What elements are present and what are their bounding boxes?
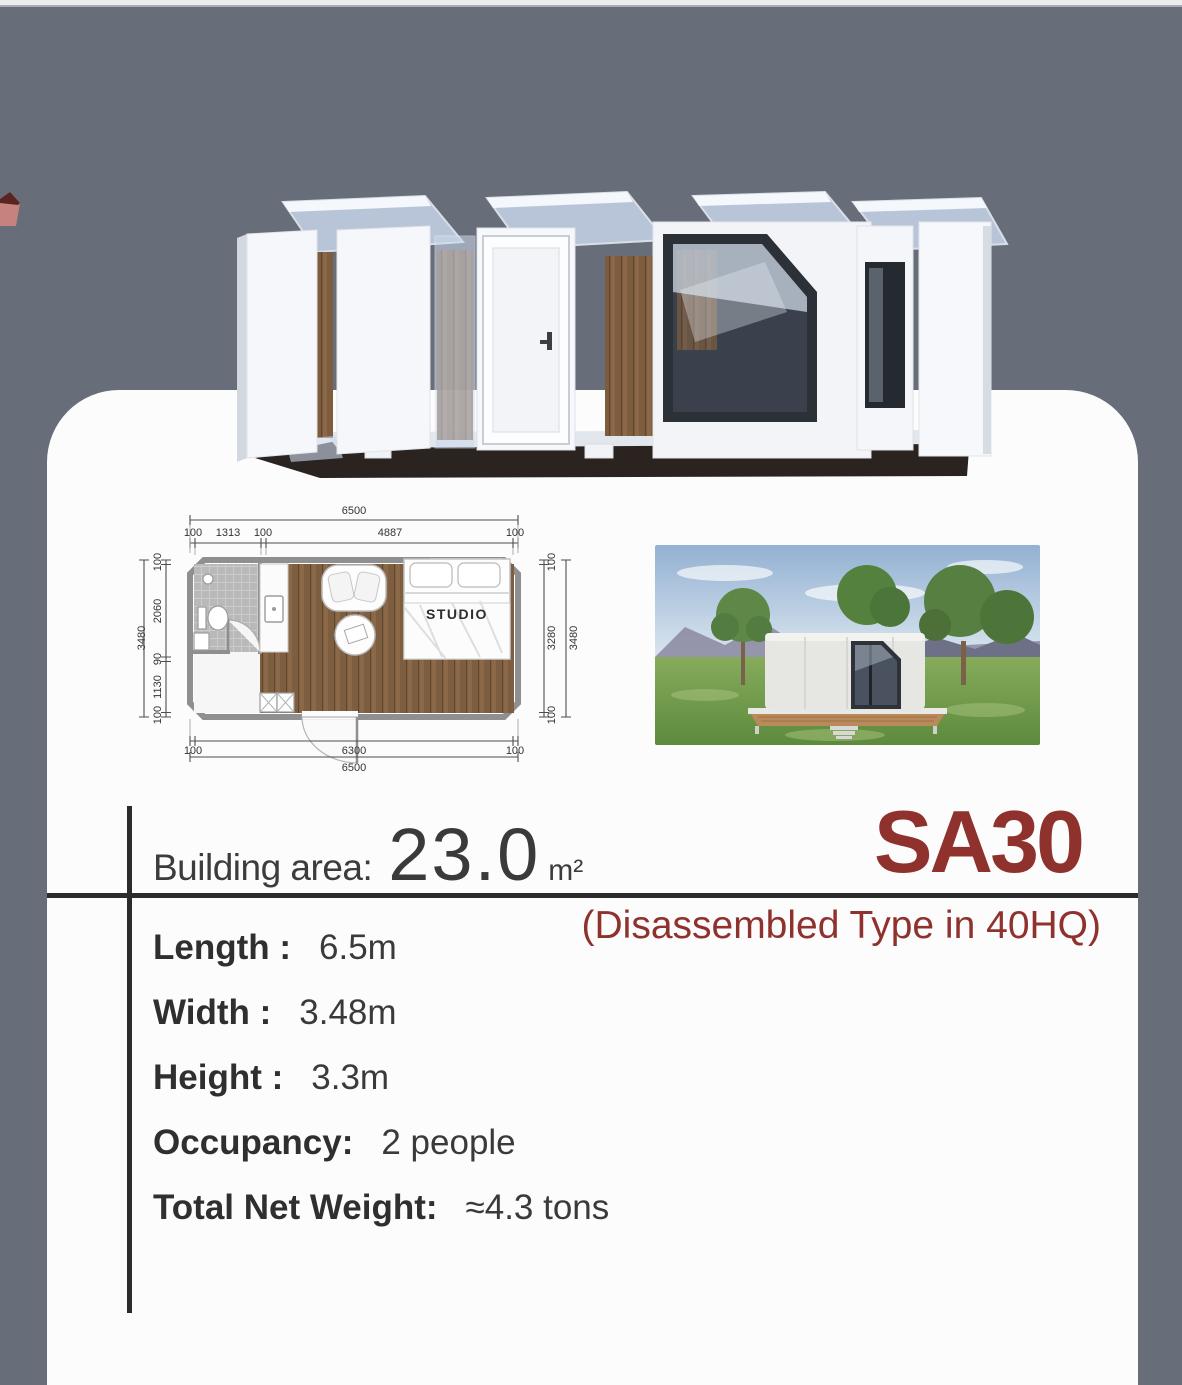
spec-row-height: Height : 3.3m bbox=[153, 1045, 609, 1110]
page-background: STUDIO 6500 100 1313 100 4887 100 3480 1… bbox=[0, 0, 1182, 1385]
dim-bottom-total: 6500 bbox=[342, 762, 366, 774]
spec-list: Length : 6.5m Width : 3.48m Height : 3.3… bbox=[153, 915, 609, 1240]
spec-label: Height : bbox=[153, 1058, 283, 1098]
dim-left-seg: 100 bbox=[152, 706, 164, 724]
red-object-fragment bbox=[0, 192, 20, 226]
vertical-divider bbox=[127, 806, 132, 1313]
dim-top-seg: 100 bbox=[254, 527, 272, 539]
spec-value: 3.3m bbox=[311, 1058, 389, 1098]
sofa bbox=[322, 565, 386, 611]
angled-window-panel bbox=[653, 222, 871, 458]
dim-bottom-seg: 6300 bbox=[342, 745, 366, 757]
building-area-label: Building area: bbox=[153, 847, 372, 889]
dim-left-seg: 90 bbox=[152, 653, 164, 665]
wood-deck bbox=[750, 713, 945, 726]
dim-top-seg: 4887 bbox=[378, 527, 402, 539]
dim-top-seg: 100 bbox=[184, 527, 202, 539]
room-label: STUDIO bbox=[426, 606, 488, 622]
spec-row-width: Width : 3.48m bbox=[153, 980, 609, 1045]
model-subtitle: (Disassembled Type in 40HQ) bbox=[582, 904, 1102, 948]
white-wall-panels bbox=[237, 226, 430, 462]
spec-label: Width : bbox=[153, 993, 271, 1033]
model-code: SA30 bbox=[874, 798, 1082, 886]
dim-top-seg: 100 bbox=[506, 527, 524, 539]
top-edge-strip bbox=[0, 0, 1182, 7]
dim-top-total: 6500 bbox=[342, 505, 366, 517]
dim-left-seg: 2060 bbox=[152, 599, 164, 623]
spec-value: 3.48m bbox=[299, 993, 396, 1033]
dim-right-seg: 3280 bbox=[546, 626, 558, 650]
dim-bottom-seg: 100 bbox=[506, 745, 524, 757]
entry-door-panel bbox=[477, 228, 575, 450]
house bbox=[748, 633, 947, 739]
dim-left-seg: 100 bbox=[152, 553, 164, 571]
spec-label: Length : bbox=[153, 928, 291, 968]
house-photo bbox=[655, 545, 1040, 745]
exploded-house-render bbox=[225, 190, 1010, 485]
spec-row-occupancy: Occupancy: 2 people bbox=[153, 1110, 609, 1175]
shower-head bbox=[203, 574, 213, 584]
pillow bbox=[410, 563, 452, 587]
horizontal-divider bbox=[47, 893, 1138, 898]
spec-label: Total Net Weight: bbox=[153, 1188, 438, 1228]
spec-value: 2 people bbox=[381, 1123, 515, 1163]
dim-right-total: 3480 bbox=[568, 626, 580, 650]
dim-right-seg: 100 bbox=[546, 553, 558, 571]
bathroom-sink bbox=[194, 633, 209, 650]
building-area-unit: m² bbox=[548, 854, 583, 888]
dim-right-seg: 100 bbox=[546, 706, 558, 724]
spec-row-weight: Total Net Weight: ≈4.3 tons bbox=[153, 1175, 609, 1240]
dim-top-seg: 1313 bbox=[216, 527, 240, 539]
floor-plan: STUDIO 6500 100 1313 100 4887 100 3480 1… bbox=[130, 495, 590, 785]
pillow bbox=[458, 563, 500, 587]
round-table bbox=[335, 615, 375, 655]
building-area-row: Building area: 23.0 m² bbox=[153, 812, 583, 897]
toilet-tank bbox=[198, 607, 206, 629]
flat-window-panel bbox=[857, 226, 913, 450]
spec-row-length: Length : 6.5m bbox=[153, 915, 609, 980]
spec-value: ≈4.3 tons bbox=[466, 1188, 610, 1228]
dim-left-total: 3480 bbox=[136, 626, 148, 650]
dim-left-seg: 1130 bbox=[152, 675, 164, 699]
toilet-bowl bbox=[208, 606, 228, 630]
dim-bottom-seg: 100 bbox=[184, 745, 202, 757]
end-wall-panel bbox=[919, 222, 991, 456]
spec-value: 6.5m bbox=[319, 928, 397, 968]
spec-label: Occupancy: bbox=[153, 1123, 353, 1163]
building-area-value: 23.0 bbox=[388, 812, 540, 897]
hallway-floor bbox=[194, 652, 260, 713]
